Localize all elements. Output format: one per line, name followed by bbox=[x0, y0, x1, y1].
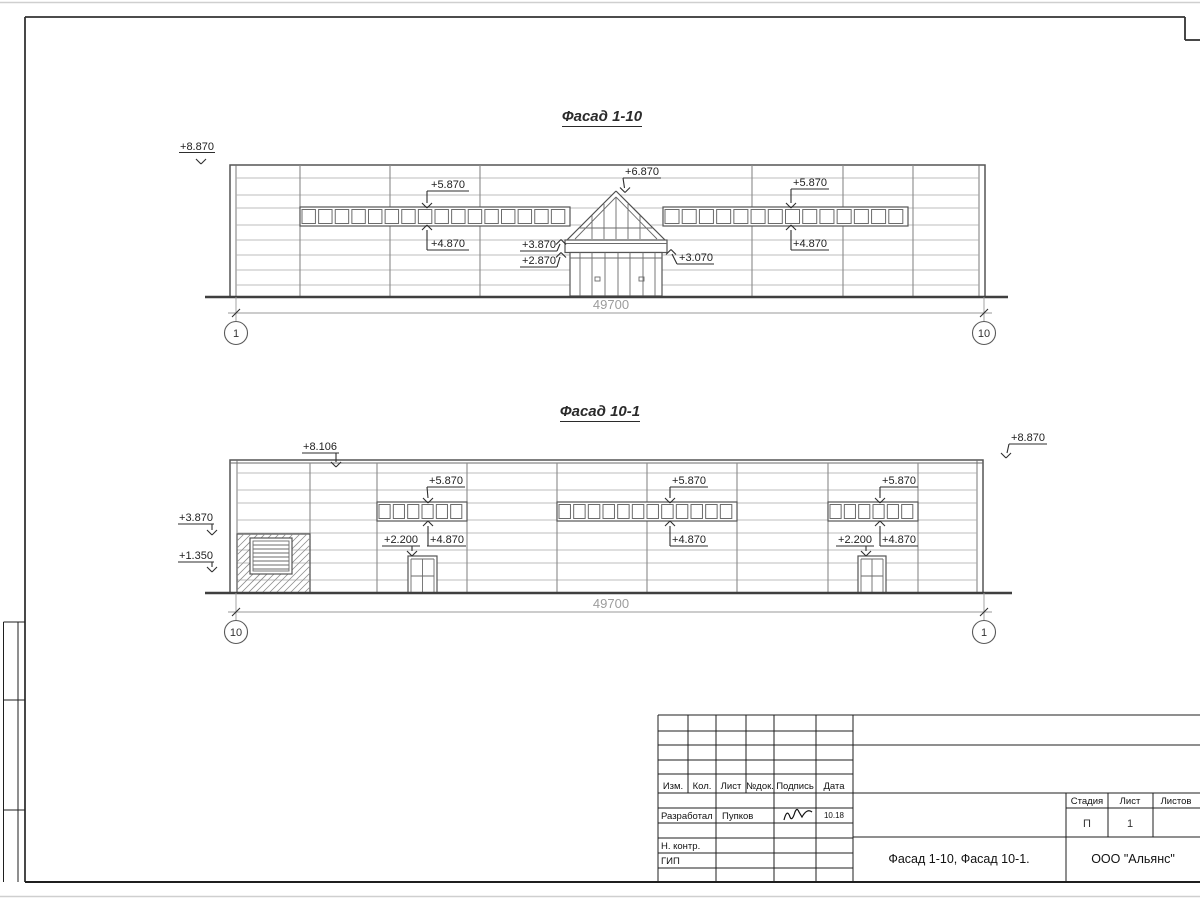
signature bbox=[784, 810, 812, 821]
axis-label: 1 bbox=[981, 627, 987, 639]
window-cell bbox=[435, 210, 448, 224]
window-cell bbox=[632, 505, 643, 519]
elevation-text: +4.870 bbox=[882, 534, 916, 546]
elevation-text: +5.870 bbox=[429, 475, 463, 487]
window-cell bbox=[676, 505, 687, 519]
elevation-arrow bbox=[196, 159, 201, 164]
sheet-number: 1 bbox=[1127, 818, 1133, 830]
leader-line bbox=[623, 178, 625, 188]
elevation-arrow bbox=[670, 521, 675, 526]
elevation-arrow bbox=[880, 521, 885, 526]
elevation-arrow bbox=[866, 551, 871, 556]
col-header-kol: Кол. bbox=[693, 781, 712, 792]
canopy bbox=[565, 240, 667, 253]
elevation-mark: +1.350 bbox=[178, 550, 217, 572]
elevation-mark: +4.870 bbox=[875, 521, 918, 546]
window-cell bbox=[768, 210, 782, 224]
title-block: Изм. Кол. Лист №док. Подпись Дата Разраб… bbox=[658, 715, 1200, 882]
window-cell bbox=[717, 210, 731, 224]
axis-label: 1 bbox=[233, 328, 239, 340]
elevation-text: +2.200 bbox=[838, 534, 872, 546]
window-cell bbox=[518, 210, 531, 224]
window-cell bbox=[468, 210, 481, 224]
elevation-mark: +4.870 bbox=[665, 521, 708, 546]
window-cell bbox=[873, 505, 884, 519]
window-cell bbox=[691, 505, 702, 519]
elevation-mark: +8.870 bbox=[179, 141, 215, 164]
window-cell bbox=[408, 505, 419, 519]
elevation-text: +8.870 bbox=[180, 141, 214, 153]
elevation-mark: +4.870 bbox=[786, 225, 829, 250]
elevation-arrow bbox=[428, 521, 433, 526]
window-cell bbox=[665, 210, 679, 224]
window-cell bbox=[603, 505, 614, 519]
hatch-line bbox=[297, 580, 310, 593]
window-cell bbox=[418, 210, 431, 224]
elevation-mark: +5.870 bbox=[786, 177, 829, 208]
dimension-text: 49700 bbox=[593, 297, 629, 312]
elevation-text: +2.200 bbox=[384, 534, 418, 546]
elevation-arrow bbox=[407, 551, 412, 556]
window-cell bbox=[335, 210, 348, 224]
window-cell bbox=[720, 505, 731, 519]
elevation-text: +3.870 bbox=[522, 239, 556, 251]
window-cell bbox=[618, 505, 629, 519]
elevation-arrow bbox=[212, 567, 217, 572]
row-label-gip: ГИП bbox=[661, 856, 680, 867]
row-label-ncontr: Н. контр. bbox=[661, 841, 700, 852]
window-cell bbox=[535, 210, 548, 224]
col-header-data: Дата bbox=[823, 781, 845, 792]
storefront bbox=[570, 253, 662, 297]
elevation-mark: +5.870 bbox=[875, 475, 918, 503]
elevation-text: +3.070 bbox=[679, 252, 713, 264]
stage-label: Стадия bbox=[1071, 796, 1103, 807]
window-cell bbox=[734, 210, 748, 224]
leader-line bbox=[672, 254, 677, 264]
col-header-ndoc: №док. bbox=[746, 781, 774, 792]
elevation-arrow bbox=[625, 188, 630, 193]
elevation-text: +2.870 bbox=[522, 255, 556, 267]
window-cell bbox=[319, 210, 332, 224]
dimension-group: 49700 1 10 bbox=[225, 297, 996, 345]
elevation-mark: +4.870 bbox=[423, 521, 466, 546]
elevation-arrow bbox=[671, 250, 676, 255]
leader-line bbox=[557, 244, 560, 251]
facade-drawing-sheet: Фасад 1-10 +8.870+5.870+4.870+6.870+5.87… bbox=[0, 0, 1200, 900]
elevation-mark: +2.200 bbox=[836, 534, 874, 556]
elevation-text: +5.870 bbox=[793, 177, 827, 189]
facade-graphics bbox=[205, 165, 1008, 297]
axis-label: 10 bbox=[978, 328, 990, 340]
elevation-text: +5.870 bbox=[672, 475, 706, 487]
elevation-arrow bbox=[207, 567, 212, 572]
window-cell bbox=[302, 210, 315, 224]
elevation-text: +5.870 bbox=[882, 475, 916, 487]
elevation-text: +8.870 bbox=[1011, 432, 1045, 444]
elevation-arrow bbox=[201, 159, 206, 164]
window-cell bbox=[574, 505, 585, 519]
window-cell bbox=[502, 210, 515, 224]
window-cell bbox=[588, 505, 599, 519]
dimension-text: 49700 bbox=[593, 596, 629, 611]
company-name: ООО "Альянс" bbox=[1091, 852, 1175, 866]
elevation-arrow bbox=[423, 521, 428, 526]
elevation-marks: +8.870+5.870+4.870+6.870+5.870+4.870+3.8… bbox=[179, 141, 829, 267]
document-title: Фасад 1-10, Фасад 10-1. bbox=[888, 852, 1029, 866]
window-cell bbox=[485, 210, 498, 224]
window-cell bbox=[902, 505, 913, 519]
window-cell bbox=[786, 210, 800, 224]
col-header-podpis: Подпись bbox=[776, 781, 814, 792]
window-cell bbox=[402, 210, 415, 224]
elevation-mark: +8.870 bbox=[1001, 432, 1047, 458]
facade-1-10: Фасад 1-10 +8.870+5.870+4.870+6.870+5.87… bbox=[179, 108, 1008, 345]
facade-title: Фасад 1-10 bbox=[562, 108, 643, 125]
side-stamp bbox=[4, 622, 26, 882]
sheets-label: Листов bbox=[1161, 796, 1192, 807]
elevation-text: +4.870 bbox=[793, 238, 827, 250]
window-cell bbox=[551, 210, 564, 224]
elevation-arrow bbox=[412, 551, 417, 556]
elevation-mark: +6.870 bbox=[620, 166, 661, 193]
elevation-arrow bbox=[1006, 453, 1011, 458]
window-cell bbox=[854, 210, 868, 224]
hatch-line bbox=[237, 534, 251, 548]
row-label-developed: Разработал bbox=[661, 811, 713, 822]
elevation-text: +3.870 bbox=[179, 512, 213, 524]
elevation-text: +4.870 bbox=[672, 534, 706, 546]
elevation-mark: +3.870 bbox=[178, 512, 217, 535]
elevation-mark: +2.200 bbox=[382, 534, 420, 556]
window-cell bbox=[352, 210, 365, 224]
elevation-arrow bbox=[212, 530, 217, 535]
elevation-arrow bbox=[861, 551, 866, 556]
window-cell bbox=[706, 505, 717, 519]
elevation-mark: +3.070 bbox=[666, 250, 714, 265]
col-header-izm: Изм. bbox=[663, 781, 683, 792]
window-cell bbox=[699, 210, 713, 224]
window-cell bbox=[369, 210, 382, 224]
window-cell bbox=[559, 505, 570, 519]
elevation-text: +4.870 bbox=[431, 238, 465, 250]
window-cell bbox=[379, 505, 390, 519]
elevation-arrow bbox=[620, 188, 625, 193]
signature-date: 10.18 bbox=[824, 811, 845, 820]
window-cell bbox=[436, 505, 447, 519]
facade-10-1: Фасад 10-1 +8.106+8.870+3.870+1.350+5.87… bbox=[178, 403, 1047, 644]
elevation-arrow bbox=[207, 530, 212, 535]
elevation-arrow bbox=[875, 521, 880, 526]
window-cell bbox=[451, 505, 462, 519]
elevation-mark: +5.870 bbox=[665, 475, 708, 503]
elevation-text: +5.870 bbox=[431, 179, 465, 191]
window-cell bbox=[887, 505, 898, 519]
elevation-arrow bbox=[1001, 453, 1006, 458]
window-cell bbox=[837, 210, 851, 224]
axis-label: 10 bbox=[230, 627, 242, 639]
window-cell bbox=[647, 505, 658, 519]
window-cell bbox=[393, 505, 404, 519]
window-cell bbox=[662, 505, 673, 519]
window-cell bbox=[844, 505, 855, 519]
window-cell bbox=[452, 210, 465, 224]
elevation-text: +1.350 bbox=[179, 550, 213, 562]
elevation-mark: +5.870 bbox=[422, 179, 469, 208]
stage-value: П bbox=[1083, 818, 1091, 830]
window-cell bbox=[751, 210, 765, 224]
elevation-mark: +3.870 bbox=[520, 239, 566, 251]
elevation-text: +8.106 bbox=[303, 441, 337, 453]
leader-line bbox=[427, 487, 428, 498]
window-cell bbox=[859, 505, 870, 519]
leader-line bbox=[557, 257, 560, 267]
window-cell bbox=[803, 210, 817, 224]
window-cell bbox=[385, 210, 398, 224]
developer-name: Пупков bbox=[722, 811, 753, 822]
elevation-text: +6.870 bbox=[625, 166, 659, 178]
sheet-label: Лист bbox=[1120, 796, 1141, 807]
window-cell bbox=[872, 210, 886, 224]
leader-line bbox=[1007, 444, 1009, 453]
window-cell bbox=[422, 505, 433, 519]
window-cell bbox=[830, 505, 841, 519]
elevation-text: +4.870 bbox=[430, 534, 464, 546]
window-cell bbox=[820, 210, 834, 224]
window-cell bbox=[682, 210, 696, 224]
elevation-mark: +4.870 bbox=[422, 225, 469, 250]
elevation-arrow bbox=[665, 521, 670, 526]
elevation-mark: +5.870 bbox=[423, 475, 465, 503]
dimension-group: 49700 10 1 bbox=[225, 593, 996, 644]
facade-title: Фасад 10-1 bbox=[560, 403, 640, 420]
elevation-mark: +2.870 bbox=[520, 253, 566, 268]
window-cell bbox=[889, 210, 903, 224]
col-header-list: Лист bbox=[721, 781, 742, 792]
hatch-line bbox=[237, 534, 244, 541]
